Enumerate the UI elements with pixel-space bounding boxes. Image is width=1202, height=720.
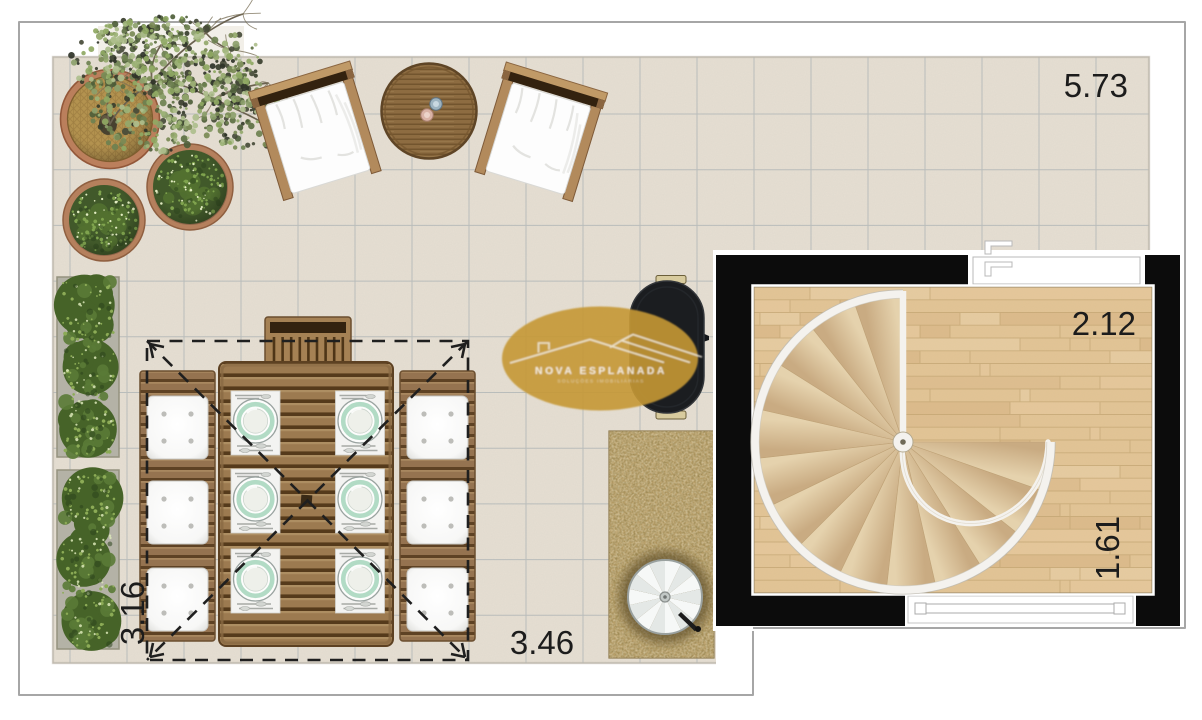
svg-text:2.12: 2.12 — [1072, 305, 1136, 342]
svg-text:NOVA ESPLANADA: NOVA ESPLANADA — [535, 366, 667, 377]
svg-text:1.61: 1.61 — [1089, 516, 1126, 580]
svg-text:SOLUÇÕES IMOBILIÁRIAS: SOLUÇÕES IMOBILIÁRIAS — [557, 378, 644, 385]
svg-text:5.73: 5.73 — [1064, 67, 1128, 104]
svg-text:3.46: 3.46 — [510, 624, 574, 661]
svg-text:3.16: 3.16 — [114, 581, 151, 645]
